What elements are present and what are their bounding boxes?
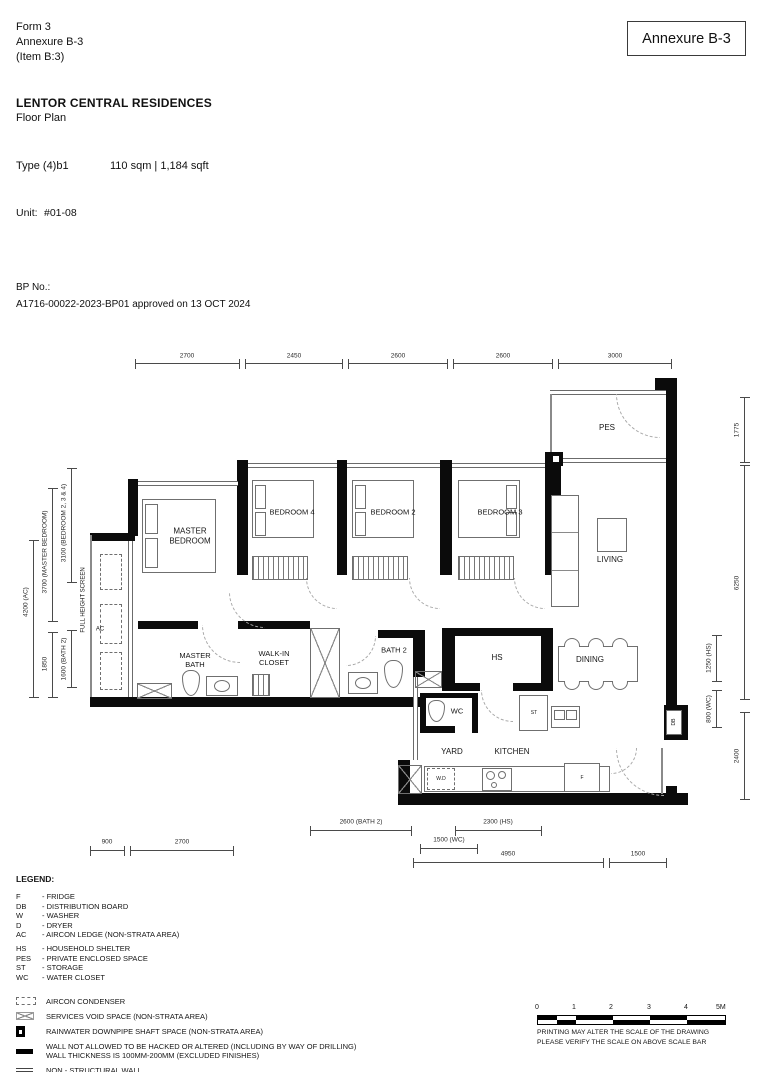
legend-row: DB- DISTRIBUTION BOARD bbox=[16, 902, 476, 912]
room-label-living: LIVING bbox=[597, 555, 623, 565]
wall-segment bbox=[237, 460, 248, 575]
legend-row: WC- WATER CLOSET bbox=[16, 973, 476, 983]
legend-desc: - DISTRIBUTION BOARD bbox=[42, 902, 128, 912]
services-void-box bbox=[310, 628, 340, 698]
legend-row: D- DRYER bbox=[16, 921, 476, 931]
dimension-line bbox=[413, 862, 604, 863]
dimension-label: 1500 bbox=[631, 851, 645, 858]
living-pes-divider bbox=[563, 458, 666, 463]
rainwater-downpipe-symbol bbox=[16, 1026, 46, 1037]
wall-segment bbox=[128, 479, 138, 536]
dimension-label: 3100 (BEDROOM 2, 3 & 4) bbox=[61, 484, 68, 562]
legend-desc: - WASHER bbox=[42, 911, 79, 921]
pillow bbox=[355, 512, 366, 536]
dimension-label: 6250 bbox=[734, 576, 741, 590]
room-label-walk-in-closet: WALK-IN CLOSET bbox=[259, 649, 290, 667]
sofa-cushion-line bbox=[552, 570, 578, 571]
dimension-label: 1775 bbox=[734, 423, 741, 437]
room-label-bedroom2: BEDROOM 2 bbox=[370, 508, 415, 517]
coffee-table bbox=[597, 518, 627, 552]
wall-segment bbox=[541, 628, 553, 691]
dimension-line bbox=[310, 830, 412, 831]
dimension-line bbox=[609, 862, 667, 863]
master-bath-toilet bbox=[182, 670, 200, 696]
dimension-label: 1500 (WC) bbox=[433, 837, 464, 844]
dimension-label: 3000 bbox=[608, 353, 622, 360]
legend-row: ST- STORAGE bbox=[16, 963, 476, 973]
dimension-line bbox=[716, 690, 717, 728]
wall-segment bbox=[398, 793, 688, 805]
services-void-box bbox=[398, 765, 422, 794]
legend-abbr: ST bbox=[16, 963, 42, 973]
wall-segment bbox=[472, 693, 478, 733]
hob-burner bbox=[491, 782, 497, 788]
dimension-label: 2600 bbox=[496, 353, 510, 360]
wall-segment bbox=[413, 630, 425, 677]
aircon-ledge-wall bbox=[90, 535, 92, 697]
legend-desc: - WATER CLOSET bbox=[42, 973, 105, 983]
dimension-label: 2300 (HS) bbox=[483, 819, 513, 826]
legend-symbol-label: NON - STRUCTURAL WALL bbox=[46, 1066, 142, 1072]
legend: LEGEND: F- FRIDGE DB- DISTRIBUTION BOARD… bbox=[16, 874, 476, 1072]
wall-segment bbox=[337, 460, 347, 575]
sofa-cushion-line bbox=[552, 532, 578, 533]
wall-segment bbox=[420, 726, 455, 733]
legend-abbr: W bbox=[16, 911, 42, 921]
yard-louver-wall bbox=[413, 677, 418, 760]
pillow bbox=[506, 485, 517, 509]
dimension-line bbox=[558, 363, 672, 364]
legend-desc: - AIRCON LEDGE (NON-STRATA AREA) bbox=[42, 930, 179, 940]
dining-chair bbox=[564, 638, 580, 647]
label-ac: AC bbox=[96, 626, 104, 633]
window-wall bbox=[347, 463, 440, 468]
dimension-line bbox=[130, 850, 234, 851]
dimension-label: 1850 bbox=[42, 657, 49, 671]
sofa bbox=[551, 495, 579, 607]
bath2-basin bbox=[355, 677, 371, 689]
dimension-label: 1250 (HS) bbox=[706, 643, 713, 673]
kitchen-sink bbox=[566, 710, 577, 720]
room-label-bedroom4: BEDROOM 4 bbox=[269, 508, 314, 517]
legend-desc: - HOUSEHOLD SHELTER bbox=[42, 944, 130, 954]
pes-side-wall bbox=[550, 394, 552, 452]
wall-segment bbox=[442, 628, 553, 636]
aircon-condenser-symbol bbox=[16, 997, 46, 1005]
dimension-line bbox=[71, 468, 72, 583]
scale-bar: 0 1 2 3 4 5M PRINTING MAY ALTER THE SCAL… bbox=[537, 1004, 737, 1048]
legend-desc: - FRIDGE bbox=[42, 892, 75, 902]
dimension-line bbox=[52, 488, 53, 622]
room-label-wc: WC bbox=[451, 707, 464, 716]
window-wall bbox=[248, 463, 337, 468]
dimension-line bbox=[420, 848, 478, 849]
dimension-line bbox=[716, 635, 717, 682]
kitchen-sink bbox=[554, 710, 565, 720]
legend-symbol-row: WALL NOT ALLOWED TO BE HACKED OR ALTERED… bbox=[16, 1042, 476, 1060]
bedroom4-wardrobe bbox=[252, 556, 308, 580]
dimension-line bbox=[90, 850, 125, 851]
room-label-dining: DINING bbox=[576, 655, 604, 665]
scale-tick: 4 bbox=[684, 1004, 688, 1011]
hob-burner bbox=[486, 771, 495, 780]
structural-wall-symbol bbox=[16, 1049, 46, 1054]
legend-desc: - STORAGE bbox=[42, 963, 83, 973]
dimension-label: 900 bbox=[102, 839, 113, 846]
label-washer-dryer: W.D bbox=[436, 776, 445, 782]
aircon-condenser-box bbox=[100, 604, 122, 644]
wall-segment bbox=[440, 460, 452, 575]
bath2-toilet bbox=[384, 660, 403, 688]
dimension-label: 1600 (BATH 2) bbox=[61, 638, 68, 681]
legend-abbr: AC bbox=[16, 930, 42, 940]
dimension-label: 2700 bbox=[180, 353, 194, 360]
dining-chair bbox=[564, 681, 580, 690]
dimension-line bbox=[245, 363, 343, 364]
label-db: DB bbox=[671, 719, 677, 726]
dimension-label: 2600 (BATH 2) bbox=[340, 819, 383, 826]
scale-tick: 0 bbox=[535, 1004, 539, 1011]
services-void-symbol bbox=[16, 1012, 46, 1020]
dining-chair bbox=[612, 681, 628, 690]
bedroom3-wardrobe bbox=[458, 556, 514, 580]
room-label-hs: HS bbox=[491, 653, 502, 663]
room-label-bath2: BATH 2 bbox=[381, 646, 407, 655]
dimension-label: 2700 bbox=[175, 839, 189, 846]
legend-row: HS- HOUSEHOLD SHELTER bbox=[16, 944, 476, 954]
wall-segment bbox=[666, 378, 677, 708]
scale-bar-ticks: 0 1 2 3 4 5M bbox=[537, 1004, 737, 1014]
dimension-line bbox=[744, 397, 745, 463]
pillow bbox=[355, 485, 366, 509]
services-void-box bbox=[415, 671, 442, 688]
legend-abbr: F bbox=[16, 892, 42, 902]
legend-title: LEGEND: bbox=[16, 874, 476, 884]
pillow bbox=[145, 538, 158, 568]
pillow bbox=[255, 512, 266, 536]
scale-bar-blocks bbox=[537, 1015, 726, 1025]
floor-plan-page: Form 3 Annexure B-3 (Item B:3) Annexure … bbox=[0, 0, 768, 1072]
room-label-master-bath: MASTER BATH bbox=[179, 651, 210, 669]
dimension-line bbox=[744, 465, 745, 700]
dimension-label: 2450 bbox=[287, 353, 301, 360]
legend-row: PES- PRIVATE ENCLOSED SPACE bbox=[16, 954, 476, 964]
legend-row: W- WASHER bbox=[16, 911, 476, 921]
dining-chair bbox=[588, 638, 604, 647]
dimension-line bbox=[71, 630, 72, 688]
legend-abbr: DB bbox=[16, 902, 42, 912]
dimension-label: 4200 (AC) bbox=[23, 587, 30, 617]
legend-symbol-label: AIRCON CONDENSER bbox=[46, 997, 125, 1006]
legend-symbol-label: WALL NOT ALLOWED TO BE HACKED OR ALTERED… bbox=[46, 1042, 356, 1060]
wall-segment bbox=[378, 630, 413, 638]
pillow bbox=[145, 504, 158, 534]
legend-abbr: WC bbox=[16, 973, 42, 983]
dimension-label: 800 (WC) bbox=[706, 695, 713, 723]
label-full-height-screen: FULL HEIGHT SCREEN bbox=[80, 567, 87, 632]
master-bath-basin bbox=[214, 680, 230, 692]
scale-bar-note: PRINTING MAY ALTER THE SCALE OF THE DRAW… bbox=[537, 1028, 737, 1048]
wall-segment bbox=[513, 683, 553, 691]
dimension-line bbox=[52, 632, 53, 698]
legend-symbol-label: SERVICES VOID SPACE (NON-STRATA AREA) bbox=[46, 1012, 208, 1021]
dimension-label: 2400 bbox=[734, 749, 741, 763]
aircon-condenser-box bbox=[100, 652, 122, 690]
pillow bbox=[255, 485, 266, 509]
dining-chair bbox=[588, 681, 604, 690]
room-label-master-bedroom: MASTER BEDROOM bbox=[169, 526, 210, 545]
legend-symbol-row: NON - STRUCTURAL WALL bbox=[16, 1065, 476, 1072]
legend-desc: - PRIVATE ENCLOSED SPACE bbox=[42, 954, 148, 964]
dimension-line bbox=[348, 363, 448, 364]
scale-tick: 3 bbox=[647, 1004, 651, 1011]
label-fridge: F bbox=[580, 775, 583, 781]
wc-toilet bbox=[428, 700, 445, 722]
downpipe-void bbox=[553, 456, 559, 462]
legend-symbol-row: SERVICES VOID SPACE (NON-STRATA AREA) bbox=[16, 1011, 476, 1021]
room-label-bedroom3: BEDROOM 3 bbox=[477, 508, 522, 517]
aircon-ledge-divider bbox=[128, 541, 133, 697]
entrance-door-leaf bbox=[661, 748, 663, 794]
wall-segment bbox=[442, 683, 480, 691]
dimension-line bbox=[455, 830, 542, 831]
wall-segment bbox=[90, 533, 135, 541]
walk-in-closet-wardrobe bbox=[252, 674, 270, 696]
legend-row: AC- AIRCON LEDGE (NON-STRATA AREA) bbox=[16, 930, 476, 940]
label-storage: ST bbox=[531, 710, 537, 716]
legend-symbol-label: RAINWATER DOWNPIPE SHAFT SPACE (NON-STRA… bbox=[46, 1027, 263, 1036]
dimension-line bbox=[33, 540, 34, 698]
room-label-pes: PES bbox=[599, 423, 615, 433]
window-wall bbox=[138, 481, 238, 486]
room-label-kitchen: KITCHEN bbox=[494, 747, 529, 757]
aircon-condenser-box bbox=[100, 554, 122, 590]
window-wall bbox=[452, 463, 545, 468]
legend-abbr: HS bbox=[16, 944, 42, 954]
non-structural-wall-symbol bbox=[16, 1068, 46, 1072]
scale-tick: 1 bbox=[572, 1004, 576, 1011]
dining-chair bbox=[612, 638, 628, 647]
room-label-yard: YARD bbox=[441, 747, 463, 757]
scale-tick: 2 bbox=[609, 1004, 613, 1011]
wall-segment bbox=[442, 628, 455, 691]
wall-segment bbox=[420, 693, 478, 698]
legend-abbr: D bbox=[16, 921, 42, 931]
hob-burner bbox=[498, 771, 506, 779]
wall-segment bbox=[138, 621, 198, 629]
scale-tick: 5M bbox=[716, 1004, 726, 1011]
wall-segment bbox=[420, 693, 426, 730]
legend-abbr: PES bbox=[16, 954, 42, 964]
dimension-label: 4950 bbox=[501, 851, 515, 858]
bedroom2-wardrobe bbox=[352, 556, 408, 580]
dimension-label: 2600 bbox=[391, 353, 405, 360]
legend-row: F- FRIDGE bbox=[16, 892, 476, 902]
services-void-box bbox=[137, 683, 172, 699]
dimension-line bbox=[135, 363, 240, 364]
legend-desc: - DRYER bbox=[42, 921, 73, 931]
legend-symbol-row: AIRCON CONDENSER bbox=[16, 996, 476, 1006]
dimension-line bbox=[453, 363, 553, 364]
dimension-line bbox=[744, 712, 745, 800]
dimension-label: 3700 (MASTER BEDROOM) bbox=[42, 510, 49, 593]
legend-symbol-row: RAINWATER DOWNPIPE SHAFT SPACE (NON-STRA… bbox=[16, 1026, 476, 1037]
